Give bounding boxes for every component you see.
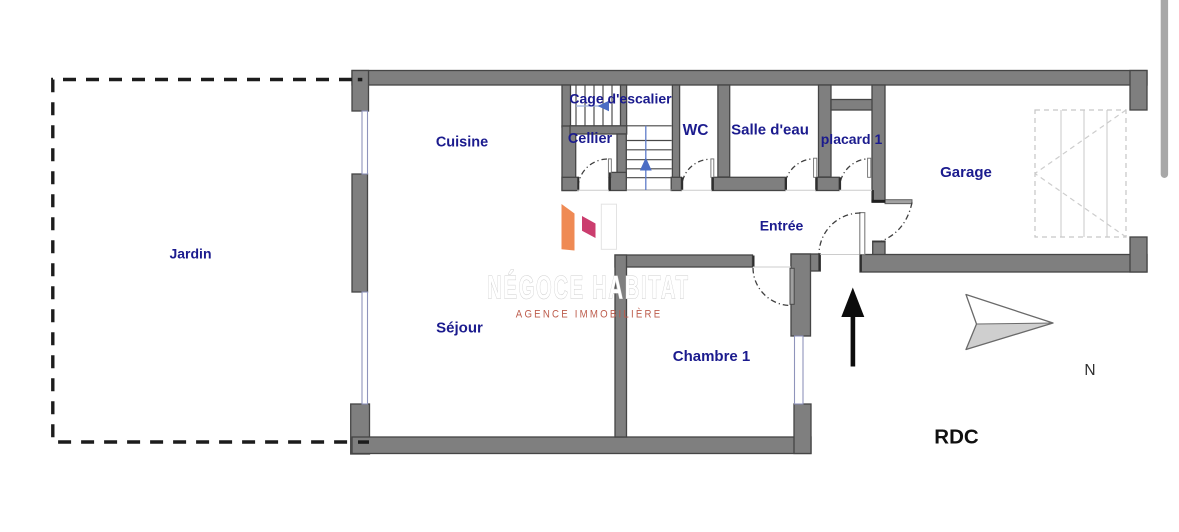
svg-text:Cuisine: Cuisine — [436, 135, 488, 151]
svg-text:placard 1: placard 1 — [821, 131, 883, 147]
svg-text:Cage d'escalier: Cage d'escalier — [569, 90, 672, 106]
svg-text:NÉGOCE HABITAT: NÉGOCE HABITAT — [487, 270, 690, 306]
svg-text:Jardin: Jardin — [169, 246, 211, 262]
svg-text:Garage: Garage — [940, 164, 992, 181]
svg-text:Séjour: Séjour — [436, 320, 483, 337]
svg-text:Cellier: Cellier — [568, 131, 613, 147]
svg-text:Chambre 1: Chambre 1 — [673, 348, 751, 365]
svg-text:Entrée: Entrée — [760, 218, 804, 234]
svg-text:N: N — [1084, 362, 1095, 379]
svg-text:WC: WC — [683, 122, 709, 139]
svg-text:Salle d'eau: Salle d'eau — [731, 122, 809, 139]
svg-text:RDC: RDC — [934, 426, 979, 449]
svg-text:AGENCE IMMOBILIÈRE: AGENCE IMMOBILIÈRE — [516, 307, 663, 321]
